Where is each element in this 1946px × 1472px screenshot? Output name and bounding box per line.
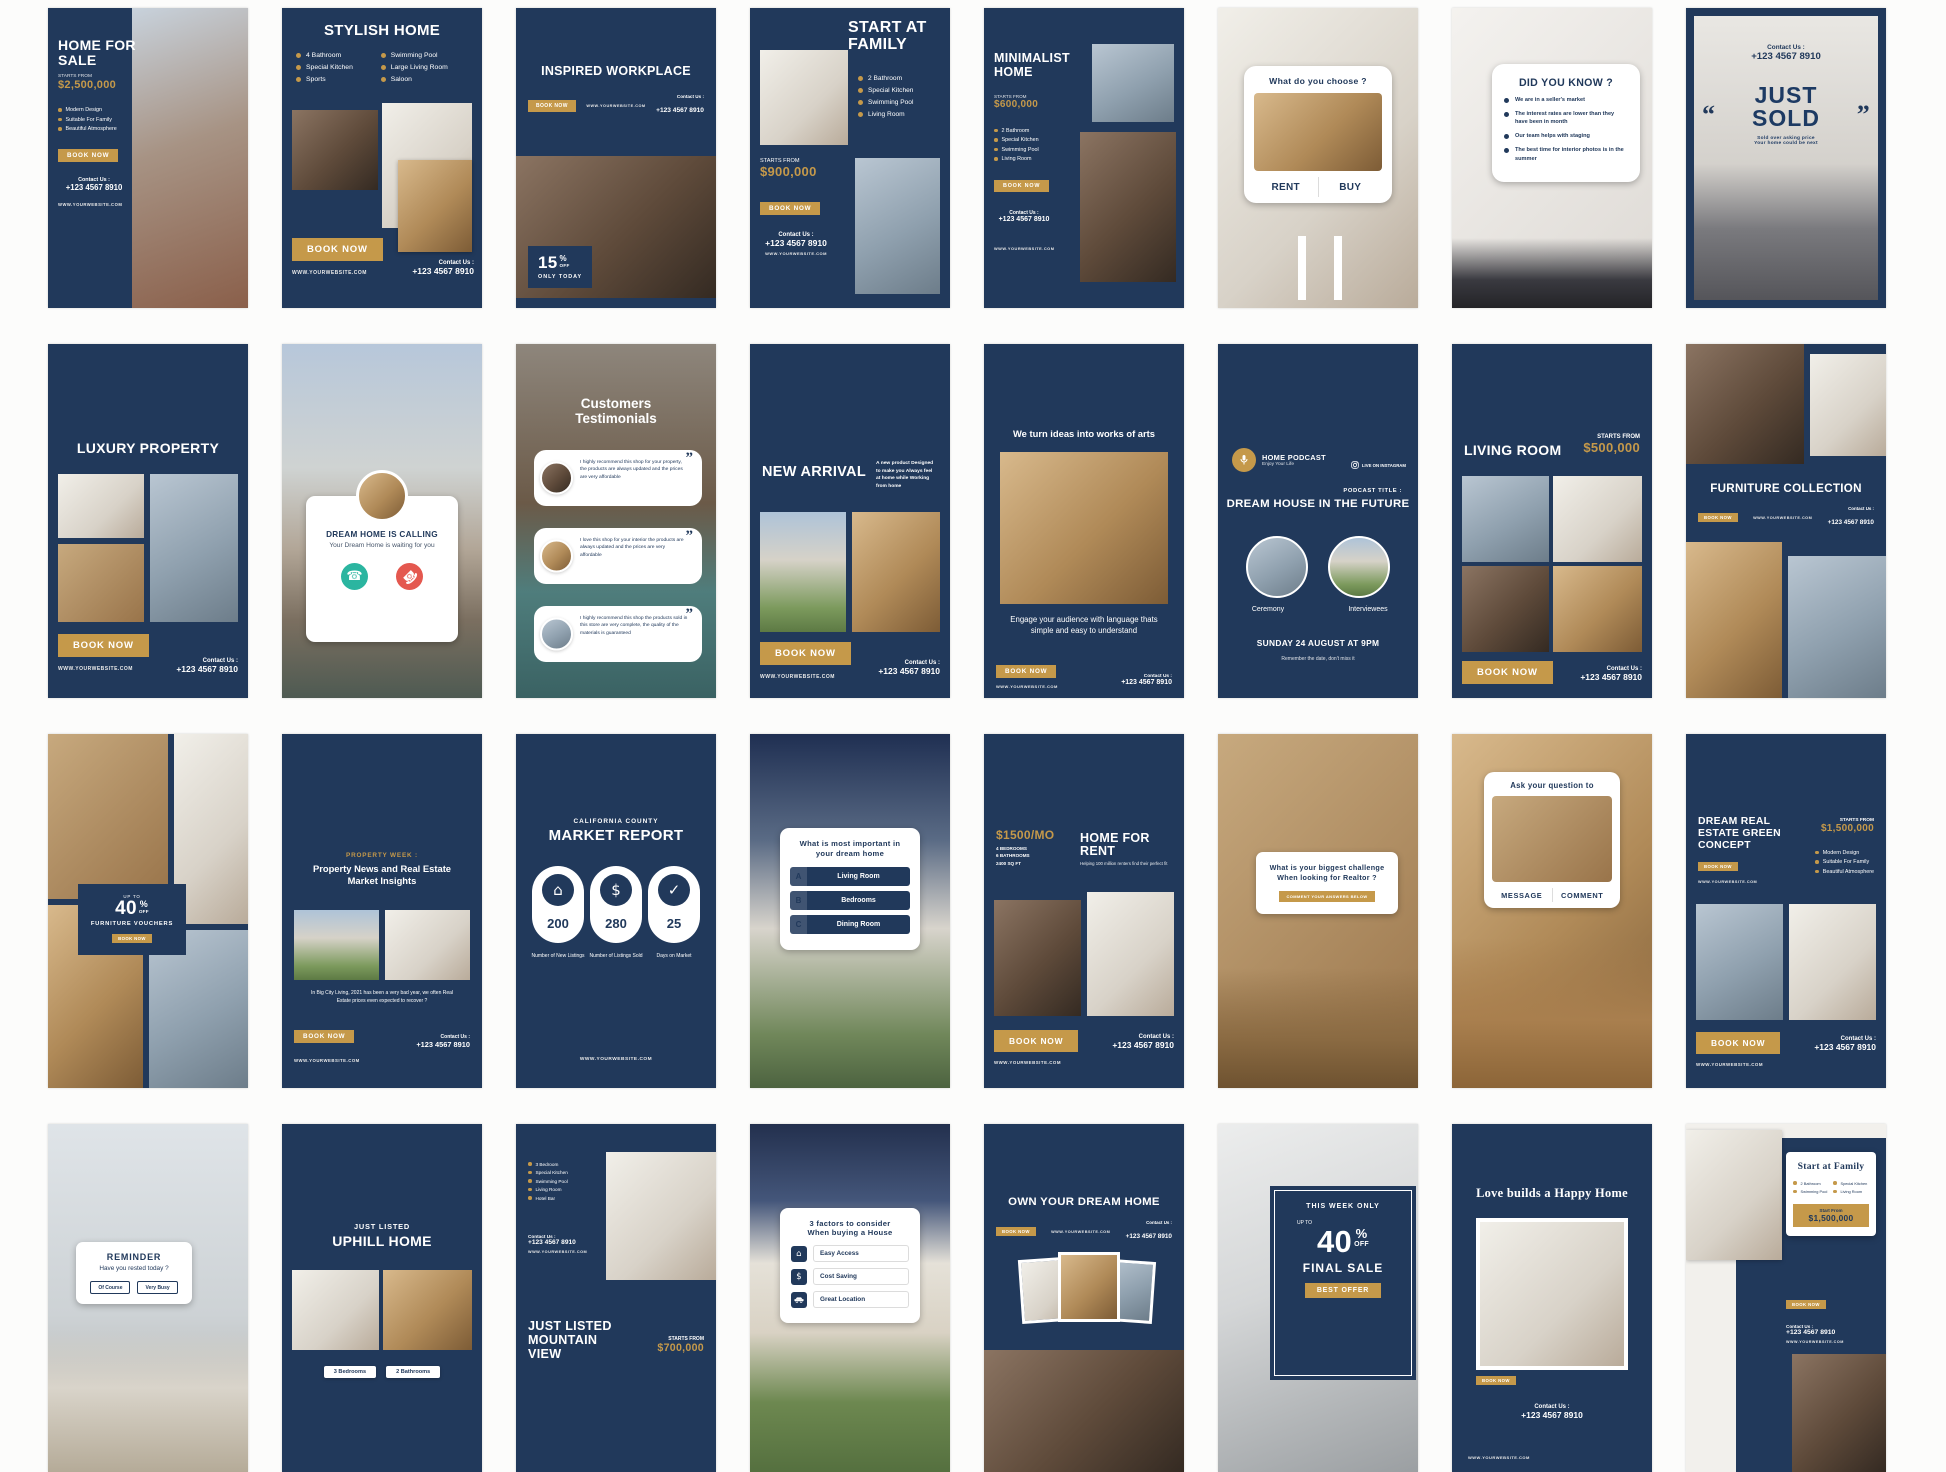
dark-interior-photo <box>1792 1354 1886 1472</box>
furniture-photo <box>1810 354 1886 456</box>
story-card-green-concept: DREAM REAL ESTATE GREEN CONCEPT STARTS F… <box>1686 734 1886 1088</box>
interior-photo <box>1789 904 1876 1020</box>
option-key: B <box>790 891 807 910</box>
book-now-button[interactable]: BOOK NOW <box>528 100 576 112</box>
story-card-reminder: REMINDER Have you rested today ? Of Cour… <box>48 1124 248 1472</box>
caller-avatar <box>356 470 408 522</box>
card-title: LUXURY PROPERTY <box>48 440 248 456</box>
schedule-note: Remember the date, don't miss it <box>1218 656 1418 662</box>
feature-item: Living Room <box>994 156 1039 162</box>
phone-accept-icon[interactable]: ☎ <box>341 563 368 590</box>
customer-avatar <box>540 462 573 495</box>
feature-item: Beautiful Atmosphere <box>58 126 138 132</box>
phone-number: +123 4567 8910 <box>176 664 238 674</box>
feature-list: 2 Bathroom Swimming Pool <box>1793 1177 1829 1198</box>
spec-item: 6 BATHROOMS <box>996 852 1054 859</box>
price: $2,500,000 <box>58 79 138 91</box>
phone-decline-icon[interactable]: ☎ <box>390 557 428 595</box>
sectional-sofa-photo <box>48 1332 248 1472</box>
poll-question: What is most important in your dream hom… <box>790 839 910 860</box>
voucher-label: FURNITURE VOUCHERS <box>86 921 178 927</box>
phone-number: +123 4567 8910 <box>1686 51 1886 62</box>
story-card-just-sold: Contact Us : +123 4567 8910 “ ” JUST SOL… <box>1686 8 1886 308</box>
website-url: WWW.YOURWEBSITE.COM <box>996 684 1058 689</box>
tagline: Helping 100 million renters find their p… <box>1080 861 1172 866</box>
speaker-label: Interviewees <box>1318 606 1418 613</box>
card-title: STYLISH HOME <box>282 22 482 39</box>
story-card-new-arrival: NEW ARRIVAL A new product Designed to ma… <box>750 344 950 698</box>
website-url: WWW.YOURWEBSITE.COM <box>1051 1230 1110 1234</box>
fact-item: We are in a seller's market <box>1504 96 1628 104</box>
dining-photo <box>398 160 472 252</box>
option-key: A <box>790 867 807 886</box>
interior-photo <box>1696 904 1783 1020</box>
podcast-brand-sub: Enjoy Your Life <box>1262 462 1326 467</box>
card-title: FURNITURE COLLECTION <box>1686 482 1886 495</box>
poll-question: What do you choose ? <box>1254 76 1382 86</box>
factor-row: Great Location <box>791 1291 909 1308</box>
website-url: WWW.YOURWEBSITE.COM <box>292 270 367 276</box>
message-button[interactable]: MESSAGE <box>1492 891 1552 900</box>
card-title: JUST LISTED MOUNTAIN VIEW <box>528 1320 632 1362</box>
feature-item: Special Kitchen <box>858 87 913 94</box>
website-url: WWW.YOURWEBSITE.COM <box>754 251 838 256</box>
podcast-brand: HOME PODCAST <box>1262 453 1326 462</box>
feature-item: 2 Bathroom <box>858 75 913 82</box>
book-now-button[interactable]: BOOK NOW <box>1696 1032 1780 1054</box>
instagram-icon <box>1351 456 1359 474</box>
option-label: Dining Room <box>807 921 910 928</box>
feature-list: Modern Design Suitable For Family Beauti… <box>58 107 138 132</box>
stat-value: 25 <box>652 916 696 931</box>
story-card-home-for-sale: HOME FOR SALE STARTS FROM $2,500,000 Mod… <box>48 8 248 308</box>
call-subheading: Your Dream Home is waiting for you <box>306 542 458 549</box>
card-title: DID YOU KNOW ? <box>1504 77 1628 89</box>
feature-item: Swimming Pool <box>994 147 1039 153</box>
podcast-title: DREAM HOUSE IN THE FUTURE <box>1218 498 1418 510</box>
price: $900,000 <box>760 164 817 179</box>
card-title-line2: Testimonials <box>516 411 716 426</box>
sofa-photo <box>1218 968 1418 1088</box>
house-entrance-photo <box>1000 452 1168 604</box>
feature-item: 3 Bedroom <box>528 1162 568 1167</box>
card-title: LIVING ROOM <box>1464 442 1561 458</box>
stat-label: Days on Market <box>645 953 703 960</box>
phone-number: +123 4567 8910 <box>1126 1233 1172 1240</box>
card-title: MARKET REPORT <box>516 827 716 844</box>
interior-photo <box>1462 566 1549 652</box>
bedroom-photo <box>292 110 378 190</box>
card-title: Property News and Real Estate Market Ins… <box>307 863 457 887</box>
discount-off-label: OFF <box>560 263 570 268</box>
price: $1,500,000 <box>1795 1213 1867 1223</box>
discount-value: 40 <box>115 899 137 918</box>
stat-pill: $ 280 <box>590 866 642 943</box>
stat-label: Number of Listings Sold <box>587 953 645 960</box>
poll-option-b[interactable]: B Bedrooms <box>790 891 910 910</box>
fact-item: The interest rates are lower than they h… <box>1504 110 1628 126</box>
armchair-photo <box>855 158 940 294</box>
website-url: WWW.YOURWEBSITE.COM <box>1468 1455 1530 1460</box>
phone-number: +123 4567 8910 <box>1828 519 1874 526</box>
bathrooms-chip[interactable]: 2 Bathrooms <box>386 1366 440 1378</box>
stat-label: Number of New Listings <box>529 953 587 960</box>
poll-option-buy[interactable]: BUY <box>1319 182 1383 193</box>
feature-item: Swimming Pool <box>381 52 468 59</box>
story-card-3-factors: 3 factors to consider When buying a Hous… <box>750 1124 950 1472</box>
building-photo <box>132 8 248 308</box>
phone-number: +123 4567 8910 <box>986 216 1062 223</box>
body-text: In Big City Living, 2021 has been a very… <box>304 990 460 1006</box>
heading-line1: 3 factors to consider <box>791 1219 909 1228</box>
feature-item: Special Kitchen <box>1833 1181 1869 1186</box>
bedroom-photo <box>1254 93 1382 171</box>
story-card-ask-question: Ask your question to MESSAGE COMMENT <box>1452 734 1652 1088</box>
car-icon <box>791 1292 807 1308</box>
story-card-dream-home-calling: DREAM HOME IS CALLING Your Dream Home is… <box>282 344 482 698</box>
discount-off-label: OFF <box>1354 1241 1369 1248</box>
rent-price: $1500/MO <box>996 828 1054 842</box>
living-room-photo <box>58 544 144 622</box>
book-now-button[interactable]: BOOK NOW <box>994 180 1049 192</box>
price: $500,000 <box>1583 440 1640 455</box>
website-url: WWW.YOURWEBSITE.COM <box>1696 1062 1763 1067</box>
story-card-living-room: LIVING ROOM STARTS FROM $500,000 BOOK NO… <box>1452 344 1652 698</box>
lounge-photo <box>1686 1130 1782 1260</box>
stat-value: 200 <box>536 916 580 931</box>
sale-kicker: THIS WEEK ONLY <box>1283 1203 1403 1210</box>
kicker: PROPERTY WEEK : <box>282 852 482 859</box>
phone-number: +123 4567 8910 <box>416 1040 470 1049</box>
story-card-furniture-collection: FURNITURE COLLECTION BOOK NOW WWW.YOURWE… <box>1686 344 1886 698</box>
feature-item: Suitable For Family <box>58 117 138 123</box>
contact-label: Contact Us : <box>1686 44 1886 51</box>
book-now-button[interactable]: BOOK NOW <box>1476 1376 1516 1385</box>
website-url: WWW.YOURWEBSITE.COM <box>1698 880 1757 884</box>
stat-pill: ⌂ 200 <box>532 866 584 943</box>
discount-unit: % <box>139 899 149 909</box>
discount-off-label: OFF <box>139 909 149 914</box>
phone-number: +123 4567 8910 <box>656 107 704 114</box>
sign-post <box>1298 236 1306 300</box>
contact-label: Contact Us : <box>1828 506 1874 511</box>
sale-box: THIS WEEK ONLY UP TO 40 % OFF FINAL SALE… <box>1274 1190 1412 1376</box>
discount-note: ONLY TODAY <box>538 274 582 280</box>
phone-number: +123 4567 8910 <box>1786 1329 1844 1336</box>
testimonial-text: I love this shop for your interior the p… <box>580 537 688 559</box>
phone-number: +123 4567 8910 <box>1121 679 1172 686</box>
kicker: JUST LISTED <box>282 1222 482 1231</box>
caption-text: Engage your audience with language thats… <box>1002 614 1166 637</box>
website-url: WWW.YOURWEBSITE.COM <box>516 1057 716 1062</box>
story-card-uphill-home: JUST LISTED UPHILL HOME 3 Bedrooms 2 Bat… <box>282 1124 482 1472</box>
testimonial-card: ” I highly recommend this shop the produ… <box>534 606 702 662</box>
website-url: WWW.YOURWEBSITE.COM <box>994 246 1054 251</box>
website-url: WWW.YOURWEBSITE.COM <box>294 1058 360 1063</box>
house-facade-photo <box>292 1270 379 1350</box>
podcast-title-label: PODCAST TITLE : <box>1218 488 1402 494</box>
spec-item: 2400 SQ FT <box>996 860 1054 867</box>
price: $1,500,000 <box>1821 823 1874 834</box>
phone-number: +123 4567 8910 <box>1814 1042 1876 1052</box>
sign-post <box>1334 236 1342 300</box>
story-card-final-sale: THIS WEEK ONLY UP TO 40 % OFF FINAL SALE… <box>1218 1124 1418 1472</box>
testimonial-card: ” I love this shop for your interior the… <box>534 528 702 584</box>
feature-item: 4 Bathroom <box>296 52 369 59</box>
vanity-photo <box>1452 238 1652 308</box>
card-title: Start at Family <box>1793 1161 1869 1172</box>
house-icon: ⌂ <box>791 1246 807 1262</box>
feature-item: Hotel Bar <box>528 1196 568 1201</box>
book-now-button[interactable]: BOOK NOW <box>760 202 820 215</box>
customer-avatar <box>540 618 573 651</box>
card-title: Love builds a Happy Home <box>1452 1186 1652 1201</box>
option-label: Bedrooms <box>807 897 910 904</box>
sale-title: FINAL SALE <box>1283 1261 1403 1275</box>
schedule: SUNDAY 24 AUGUST AT 9PM <box>1218 638 1418 648</box>
furniture-photo <box>1686 344 1804 464</box>
bedroom-photo <box>385 910 470 980</box>
feature-item: Living Room <box>858 111 913 118</box>
book-now-button[interactable]: BOOK NOW <box>58 634 149 657</box>
price: $600,000 <box>994 99 1038 110</box>
sold-note-line2: Your home could be next <box>1686 141 1886 146</box>
discount-value: 40 <box>1317 1226 1352 1257</box>
dining-room-photo <box>150 474 238 622</box>
book-now-button[interactable]: BOOK NOW <box>996 665 1056 678</box>
testimonial-text: I highly recommend this shop the product… <box>580 615 688 637</box>
book-now-button[interactable]: BOOK NOW <box>996 1227 1036 1236</box>
kicker: CALIFORNIA COUNTY <box>516 818 716 825</box>
story-card-own-dream-home: OWN YOUR DREAM HOME BOOK NOW WWW.YOURWEB… <box>984 1124 1184 1472</box>
feature-item: Beautiful Atmosphere <box>1815 869 1874 875</box>
phone-number: +123 4567 8910 <box>754 238 838 248</box>
call-heading: DREAM HOME IS CALLING <box>306 530 458 539</box>
story-card-home-podcast: HOME PODCAST Enjoy Your Life LIVE ON INS… <box>1218 344 1418 698</box>
template-gallery: HOME FOR SALE STARTS FROM $2,500,000 Mod… <box>0 0 1946 1472</box>
interior-photo <box>1553 566 1642 652</box>
discount-value: 15 <box>538 254 558 271</box>
modern-house-photo <box>760 512 846 632</box>
comment-answers-button[interactable]: COMMENT YOUR ANSWERS BELOW <box>1279 891 1374 902</box>
website-url: WWW.YOURWEBSITE.COM <box>1753 516 1812 520</box>
website-url: WWW.YOURWEBSITE.COM <box>58 666 133 672</box>
hallway-photo <box>1092 44 1174 122</box>
furniture-photo <box>1686 542 1782 698</box>
story-card-happy-home: Love builds a Happy Home BOOK NOW Contac… <box>1452 1124 1652 1472</box>
house-photo <box>294 910 379 980</box>
story-card-stylish-home: STYLISH HOME 4 Bathroom Special Kitchen … <box>282 8 482 308</box>
quote-icon: ” <box>686 450 694 467</box>
website-url: WWW.YOURWEBSITE.COM <box>1786 1340 1844 1344</box>
website-url: WWW.YOURWEBSITE.COM <box>586 104 645 108</box>
phone-number: +123 4567 8910 <box>58 183 130 192</box>
option-label: Living Room <box>807 873 910 880</box>
quote-icon: ” <box>686 606 694 623</box>
feature-item: Special Kitchen <box>994 137 1039 143</box>
arrival-note: A new product Designed to make you Alway… <box>876 460 938 490</box>
question-text: What is your biggest challenge When look… <box>1266 863 1388 883</box>
street-photo <box>383 1270 472 1350</box>
kitchen-photo <box>58 474 144 538</box>
story-card-dream-home-poll: What is most important in your dream hom… <box>750 734 950 1088</box>
feature-list: 4 Bathroom Special Kitchen Sports <box>296 47 369 88</box>
website-url: WWW.YOURWEBSITE.COM <box>994 1060 1061 1065</box>
feature-item: Swimming Pool <box>858 99 913 106</box>
feature-item: Sports <box>296 76 369 83</box>
starts-from-label: STARTS FROM <box>994 94 1038 99</box>
poll-option-a[interactable]: A Living Room <box>790 867 910 886</box>
bedrooms-chip[interactable]: 3 Bedrooms <box>324 1366 376 1378</box>
book-now-button[interactable]: BOOK NOW <box>994 1030 1078 1052</box>
book-now-button[interactable]: BOOK NOW <box>1462 661 1553 684</box>
story-card-start-at-family-offset: Start at Family 2 Bathroom Swimming Pool… <box>1686 1124 1886 1472</box>
phone-number: +123 4567 8910 <box>1452 1410 1652 1420</box>
customer-avatar <box>540 540 573 573</box>
feature-item: Modern Design <box>1815 850 1874 856</box>
living-room-photo <box>1080 132 1176 282</box>
living-room-photo <box>48 734 168 899</box>
factor-row: $ Cost Saving <box>791 1268 909 1285</box>
feature-list: 3 Bedroom Special Kitchen Swimming Pool … <box>528 1158 568 1204</box>
story-card-inspired-workplace: INSPIRED WORKPLACE BOOK NOW WWW.YOURWEBS… <box>516 8 716 308</box>
living-room-photo <box>1553 476 1642 562</box>
fact-item: Our team helps with staging <box>1504 132 1628 140</box>
website-url: WWW.YOURWEBSITE.COM <box>58 202 138 207</box>
dark-living-photo <box>994 900 1081 1016</box>
room-photo <box>1492 796 1612 882</box>
dollar-icon: $ <box>600 874 632 906</box>
story-card-furniture-vouchers: UP TO 40 % OFF FURNITURE VOUCHERS BOOK N… <box>48 734 248 1088</box>
book-now-button[interactable]: BOOK NOW <box>1698 513 1738 522</box>
speaker-label: Ceremony <box>1218 606 1318 613</box>
discount-box: 15 % OFF ONLY TODAY <box>528 246 592 288</box>
phone-number: +123 4567 8910 <box>1580 672 1642 682</box>
fact-item: The best time for interior photos is in … <box>1504 146 1628 162</box>
price-box: Start From $1,500,000 <box>1793 1204 1869 1227</box>
card-title: NEW ARRIVAL <box>762 464 866 480</box>
feature-item: Modern Design <box>58 107 138 113</box>
story-card-did-you-know: DID YOU KNOW ? We are in a seller's mark… <box>1452 8 1652 308</box>
story-card-property-week: PROPERTY WEEK : Property News and Real E… <box>282 734 482 1088</box>
story-card-testimonials: Customers Testimonials ” I highly recomm… <box>516 344 716 698</box>
card-title: INSPIRED WORKPLACE <box>516 64 716 78</box>
stat-pill: ✓ 25 <box>648 866 700 943</box>
feature-item: Living Room <box>1833 1189 1869 1194</box>
story-card-rent-or-buy-poll: What do you choose ? RENT BUY <box>1218 8 1418 308</box>
kitchen-photo <box>1476 1218 1628 1370</box>
card-title: HOME FOR SALE <box>58 38 138 68</box>
very-busy-button[interactable]: Very Busy <box>137 1281 177 1294</box>
heading-line2: When buying a House <box>791 1228 909 1237</box>
testimonial-card: ” I highly recommend this shop for your … <box>534 450 702 506</box>
story-card-minimalist-home: MINIMALIST HOME STARTS FROM $600,000 2 B… <box>984 8 1184 308</box>
furniture-photo <box>1788 556 1886 698</box>
story-card-luxury-property: LUXURY PROPERTY BOOK NOW WWW.YOURWEBSITE… <box>48 344 248 698</box>
story-card-home-for-rent: $1500/MO 4 BEDROOMS 6 BATHROOMS 2400 SQ … <box>984 734 1184 1088</box>
card-title: HOME FOR RENT <box>1080 832 1172 858</box>
book-now-button[interactable]: BOOK NOW <box>1698 862 1738 871</box>
dining-photo <box>1452 938 1652 1088</box>
spec-item: 4 BEDROOMS <box>996 845 1054 852</box>
card-title-line1: Customers <box>516 396 716 411</box>
facts-list: We are in a seller's market The interest… <box>1504 96 1628 163</box>
discount-unit: % <box>560 254 570 263</box>
feature-item: Swimming Pool <box>528 1179 568 1184</box>
factor-row: ⌂ Easy Access <box>791 1245 909 1262</box>
option-key: C <box>790 915 807 934</box>
bright-living-photo <box>1087 892 1174 1016</box>
website-url: WWW.YOURWEBSITE.COM <box>760 674 835 680</box>
feature-list: Modern Design Suitable For Family Beauti… <box>1815 846 1874 878</box>
feature-item: Special Kitchen <box>296 64 369 71</box>
best-offer-badge: BEST OFFER <box>1305 1283 1381 1298</box>
feature-item: 2 Bathroom <box>1793 1181 1829 1186</box>
book-now-button[interactable]: BOOK NOW <box>292 238 383 261</box>
phone-number: +123 4567 8910 <box>412 266 474 276</box>
book-now-button[interactable]: BOOK NOW <box>760 642 851 665</box>
quote-icon: ” <box>686 528 694 545</box>
feature-item: Saloon <box>381 76 468 83</box>
book-now-button[interactable]: BOOK NOW <box>1786 1300 1826 1309</box>
feature-item: 2 Bathroom <box>994 128 1039 134</box>
phone-number: +123 4567 8910 <box>1112 1040 1174 1050</box>
book-now-button[interactable]: BOOK NOW <box>58 149 118 162</box>
dollar-icon: $ <box>791 1269 807 1285</box>
feature-list: 2 Bathroom Special Kitchen Swimming Pool… <box>994 124 1039 166</box>
phone-number: +123 4567 8910 <box>528 1239 587 1246</box>
feature-item: Large Living Room <box>381 64 468 71</box>
microphone-icon <box>1232 448 1256 472</box>
feature-list: Special Kitchen Living Room <box>1833 1177 1869 1198</box>
ceremony-photo <box>1246 536 1308 598</box>
bedroom-photo <box>1462 476 1549 562</box>
ask-heading: Ask your question to <box>1492 781 1612 790</box>
phone-number: +123 4567 8910 <box>878 666 940 676</box>
card-title: DREAM REAL ESTATE GREEN CONCEPT <box>1698 816 1794 852</box>
feature-item: Living Room <box>528 1187 568 1192</box>
card-title: MINIMALIST HOME <box>994 52 1078 80</box>
book-now-button[interactable]: BOOK NOW <box>294 1030 354 1043</box>
sold-title-line1: JUST <box>1686 84 1886 107</box>
poll-option-rent[interactable]: RENT <box>1254 182 1318 193</box>
interviewees-photo <box>1328 536 1390 598</box>
mountain-home-photo <box>606 1152 716 1280</box>
feature-list: Swimming Pool Large Living Room Saloon <box>381 47 468 88</box>
poll-option-c[interactable]: C Dining Room <box>790 915 910 934</box>
card-title: UPHILL HOME <box>282 1233 482 1249</box>
sold-title-line2: SOLD <box>1686 107 1886 130</box>
story-card-works-of-arts: We turn ideas into works of arts Engage … <box>984 344 1184 698</box>
feature-list: 2 Bathroom Special Kitchen Swimming Pool… <box>858 70 913 123</box>
factor-label: Great Location <box>813 1291 909 1308</box>
live-label: LIVE ON INSTAGRAM <box>1362 463 1406 468</box>
discount-unit: % <box>1354 1226 1369 1241</box>
card-title: START AT FAMILY <box>848 20 940 54</box>
testimonial-text: I highly recommend this shop for your pr… <box>580 459 688 481</box>
book-now-button[interactable]: BOOK NOW <box>112 934 152 943</box>
voucher-box: UP TO 40 % OFF FURNITURE VOUCHERS BOOK N… <box>78 884 186 955</box>
checklist-icon: ✓ <box>658 874 690 906</box>
feature-item: Suitable For Family <box>1815 859 1874 865</box>
interior-snapshot <box>1058 1252 1120 1322</box>
contact-label: Contact Us : <box>656 94 704 99</box>
comment-button[interactable]: COMMENT <box>1553 891 1613 900</box>
house-icon: ⌂ <box>542 874 574 906</box>
card-title: We turn ideas into works of arts <box>984 428 1184 439</box>
of-course-button[interactable]: Of Course <box>90 1281 130 1294</box>
story-card-mountain-view: 3 Bedroom Special Kitchen Swimming Pool … <box>516 1124 716 1472</box>
